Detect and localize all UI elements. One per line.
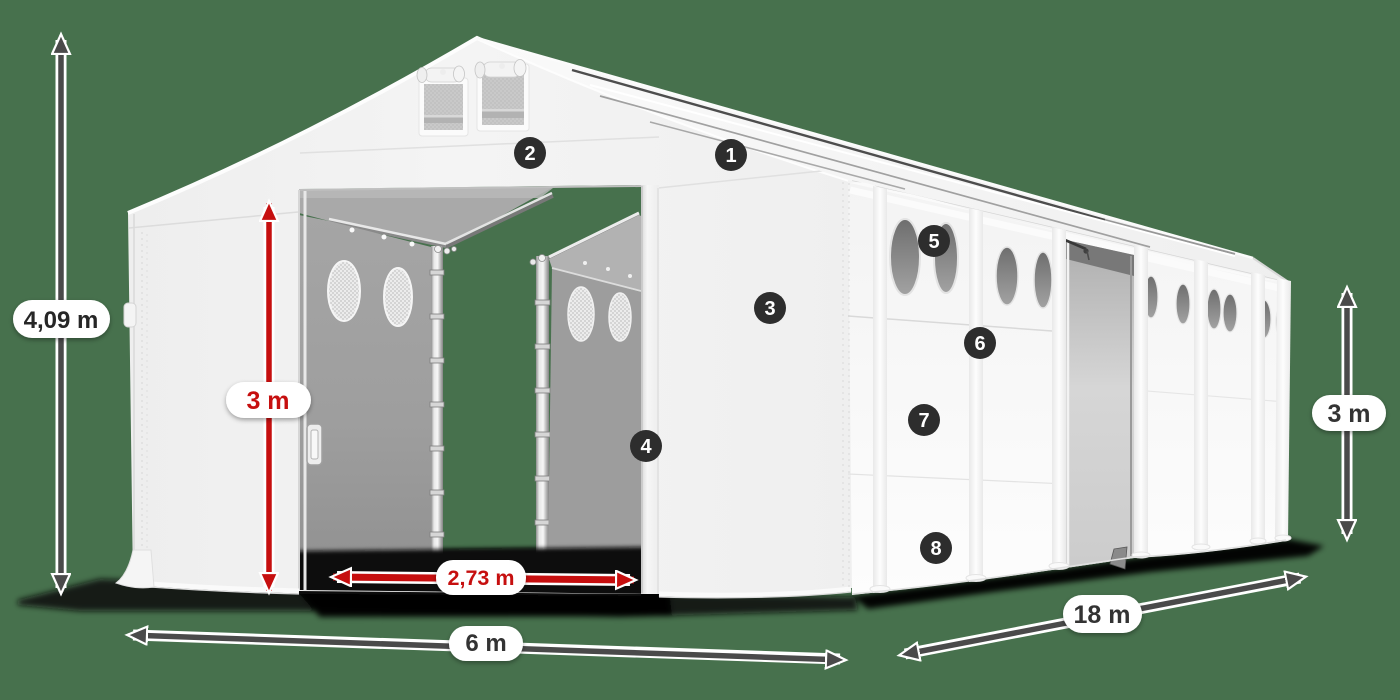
svg-text:4,09 m: 4,09 m: [24, 307, 99, 334]
svg-text:18 m: 18 m: [1074, 601, 1131, 629]
svg-text:8: 8: [930, 538, 941, 560]
svg-text:3 m: 3 m: [246, 387, 289, 415]
svg-text:7: 7: [918, 410, 929, 432]
svg-text:3 m: 3 m: [1327, 400, 1370, 428]
svg-text:4: 4: [640, 436, 652, 458]
svg-text:3: 3: [764, 298, 775, 320]
svg-text:2: 2: [524, 143, 535, 165]
svg-text:1: 1: [725, 145, 736, 167]
svg-text:6 m: 6 m: [465, 630, 506, 657]
svg-text:2,73 m: 2,73 m: [448, 566, 515, 590]
svg-text:6: 6: [974, 333, 985, 355]
svg-text:5: 5: [928, 231, 939, 253]
